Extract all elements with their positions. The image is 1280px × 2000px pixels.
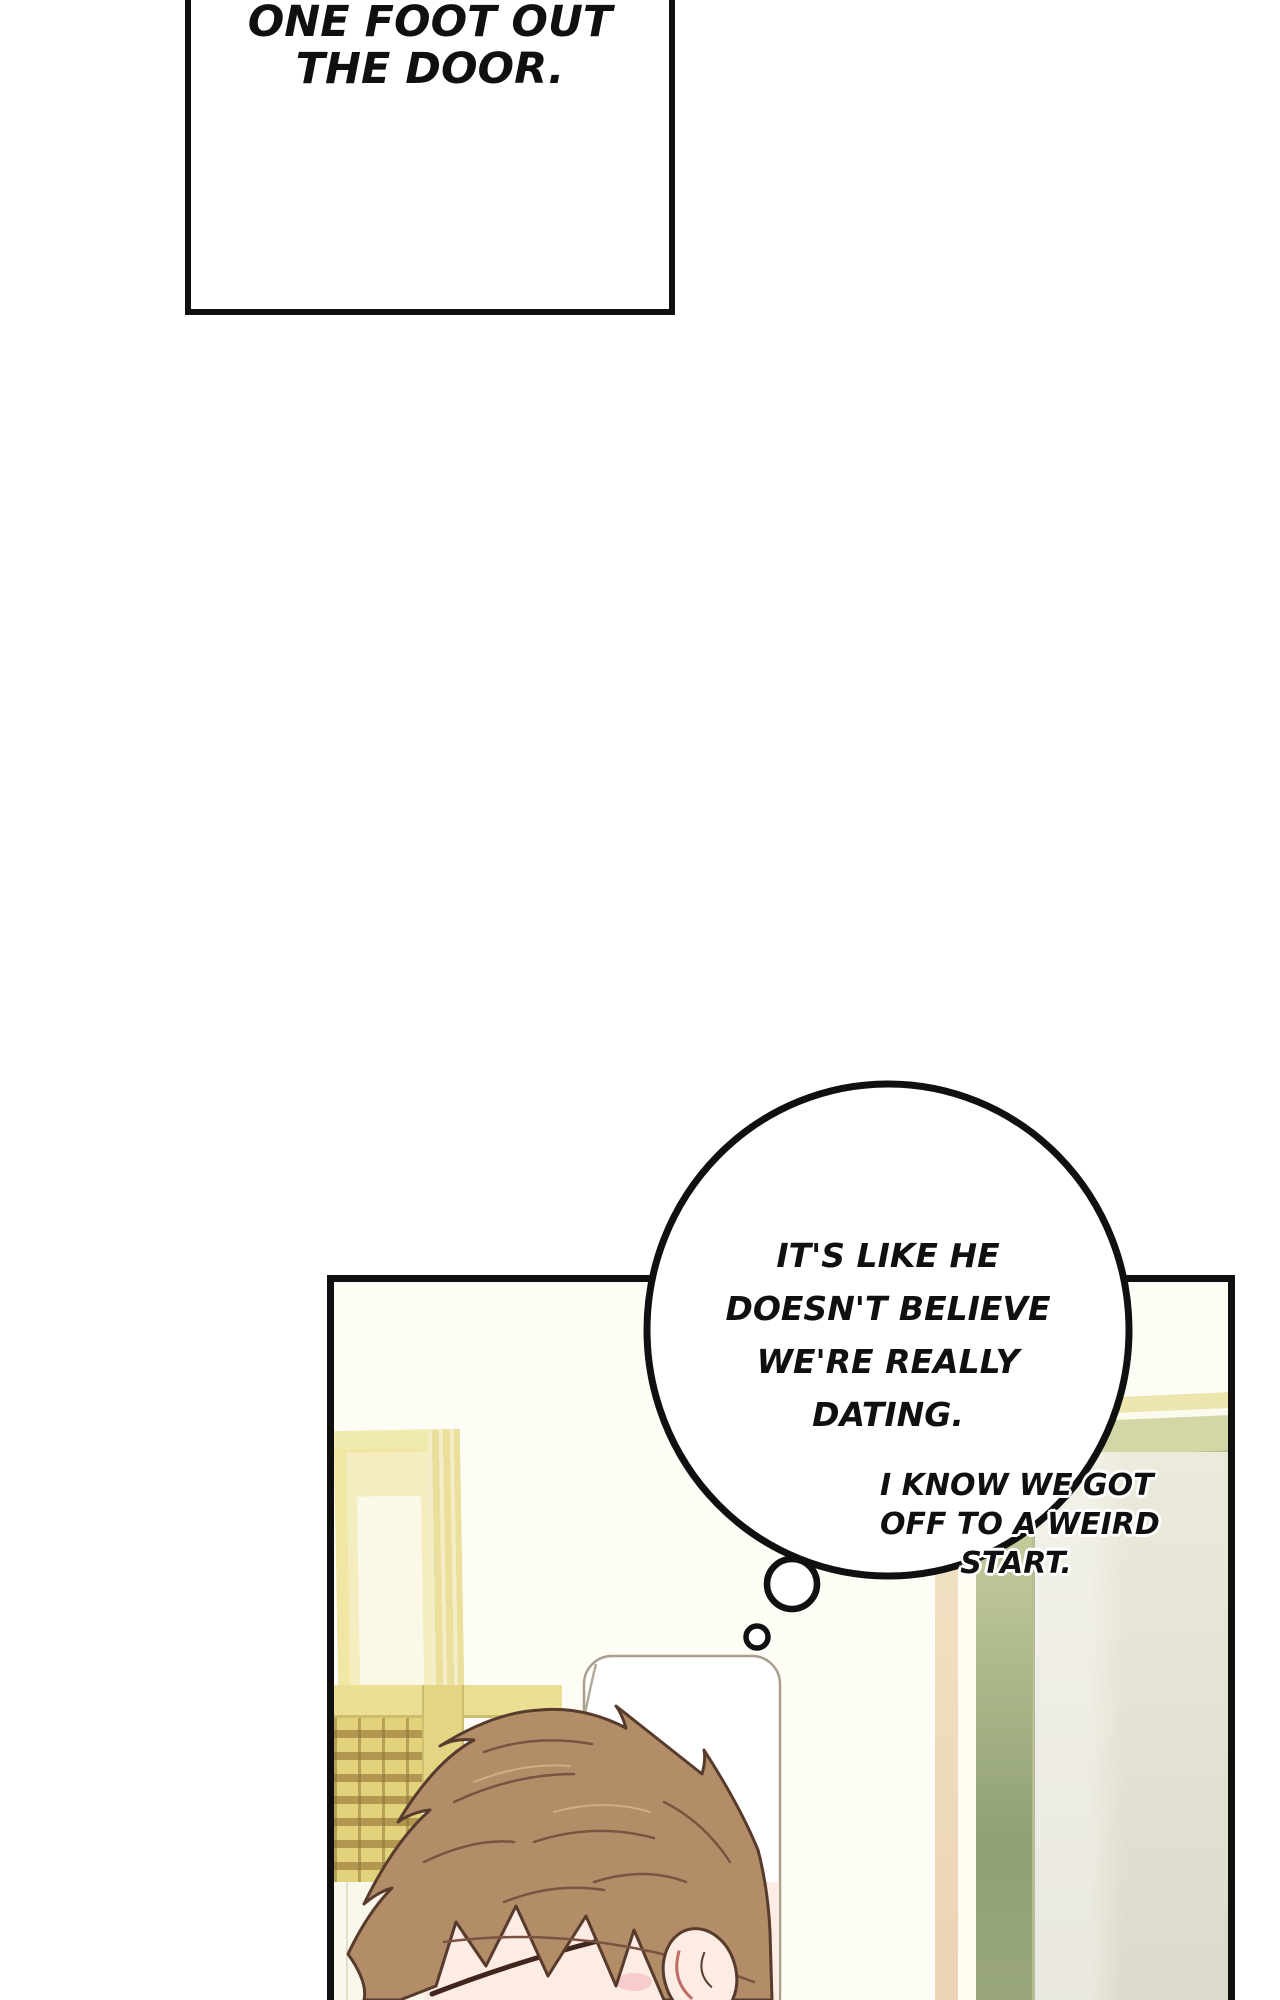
bubble-line-1: IT'S LIKE HE xyxy=(628,1229,1148,1282)
caption-box: ONE FOOT OUT THE DOOR. xyxy=(185,0,675,315)
thought-bubble-bump xyxy=(767,1559,817,1609)
side-text-line-2: OFF TO A WEIRD xyxy=(880,1505,1152,1544)
side-text-line-1: I KNOW WE GOT xyxy=(880,1466,1152,1505)
side-text-line-3: START. xyxy=(880,1544,1152,1583)
bubble-line-4: DATING. xyxy=(628,1388,1148,1441)
bubble-line-2: DOESN'T BELIEVE xyxy=(628,1282,1148,1335)
blush-right xyxy=(616,1973,652,1991)
thought-bubble-text: IT'S LIKE HE DOESN'T BELIEVE WE'RE REALL… xyxy=(628,1229,1148,1441)
caption-line-2: THE DOOR. xyxy=(191,46,669,93)
side-text: I KNOW WE GOT OFF TO A WEIRD START. xyxy=(880,1466,1152,1583)
comic-page: ONE FOOT OUT THE DOOR. xyxy=(0,0,1280,2000)
bubble-line-3: WE'RE REALLY xyxy=(628,1335,1148,1388)
thought-dot xyxy=(746,1626,768,1648)
caption-line-1: ONE FOOT OUT xyxy=(191,0,669,46)
